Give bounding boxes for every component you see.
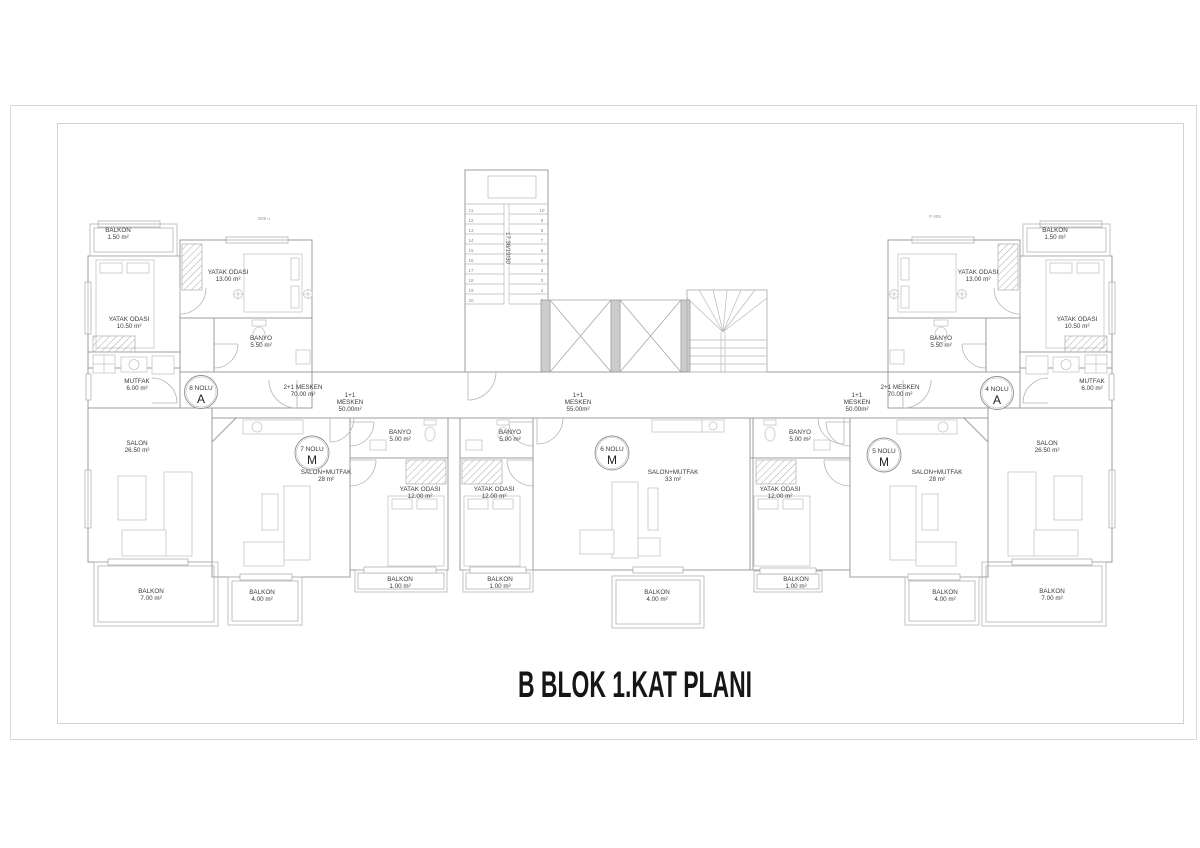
room-name: BANYO	[789, 429, 811, 436]
mesken-area: 70.00 m²	[888, 391, 913, 398]
room-name: BANYO	[250, 335, 272, 342]
stair-step-number: 9	[541, 218, 544, 223]
mesken-area: 70.00 m²	[291, 391, 316, 398]
window-dim-label: B05 u	[258, 216, 270, 221]
stair-step-number: 15	[468, 248, 474, 253]
stair-step-number: 20	[468, 298, 474, 303]
stair-step-number: 10	[539, 208, 545, 213]
room-area: 33 m²	[665, 476, 681, 483]
unit-type-letter: A	[993, 393, 1001, 407]
room-area: 1.50 m²	[1044, 234, 1065, 241]
stair-step-number: 13	[468, 228, 474, 233]
room-name: MUTFAK	[124, 378, 150, 385]
stair-step-number: 18	[468, 278, 474, 283]
room-name: MUTFAK	[1079, 378, 1105, 385]
mesken-area: 50.00m²	[338, 406, 361, 413]
room-area: 6.00 m²	[1081, 385, 1102, 392]
room-area: 4.00 m²	[934, 596, 955, 603]
stair-step-number: 19	[468, 288, 474, 293]
room-name: BALKON	[487, 576, 513, 583]
unit-type-letter: M	[879, 455, 889, 469]
unit-number: 6 NOLU	[600, 446, 624, 453]
unit-number: 7 NOLU	[300, 446, 324, 453]
mesken-type: 1+1	[573, 392, 584, 399]
room-name: SALON	[1036, 440, 1058, 447]
room-area: 5.00 m²	[789, 436, 810, 443]
stair-step-number: 6	[541, 248, 544, 253]
mesken-labels: 2+1 MESKEN 70.00 m² 1+1 MESKEN 50.00m² 1…	[283, 384, 919, 413]
unit-number: 8 NOLU	[189, 385, 213, 392]
mesken-type: 2+1 MESKEN	[283, 384, 322, 391]
mesken-type: MESKEN	[565, 399, 592, 406]
room-name: BALKON	[932, 589, 958, 596]
room-name: BANYO	[389, 429, 411, 436]
room-name: BALKON	[138, 588, 164, 595]
room-area: 5.50 m²	[250, 342, 271, 349]
room-name: BALKON	[1039, 588, 1065, 595]
room-area: 4.00 m²	[646, 596, 667, 603]
room-area: 28 m²	[929, 476, 945, 483]
room-name: BALKON	[387, 576, 413, 583]
stair-step-number: 17	[468, 268, 474, 273]
floor-plan: 11 12 13 14 15 16 17 18 19 20 10 9 8 7 6…	[0, 0, 1200, 848]
room-name: BANYO	[930, 335, 952, 342]
room-area: 13.00 m²	[966, 276, 991, 283]
room-area: 10.50 m²	[1065, 323, 1090, 330]
room-area: 1.50 m²	[107, 234, 128, 241]
room-name: BALKON	[783, 576, 809, 583]
stair-step-number: 5	[541, 258, 544, 263]
room-area: 5.00 m²	[499, 436, 520, 443]
room-name: YATAK ODASI	[474, 486, 515, 493]
room-area: 5.50 m²	[930, 342, 951, 349]
room-area: 6.00 m²	[126, 385, 147, 392]
mesken-type: MESKEN	[844, 399, 871, 406]
room-name: YATAK ODASI	[958, 269, 999, 276]
room-name: SALON+MUTFAK	[648, 469, 699, 476]
staircase: 11 12 13 14 15 16 17 18 19 20 10 9 8 7 6…	[465, 170, 548, 372]
room-name: YATAK ODASI	[400, 486, 441, 493]
stair-step-number: 4	[541, 268, 544, 273]
building-walls	[88, 240, 1112, 577]
unit-type-letter: M	[607, 453, 617, 467]
stair-step-number: 8	[541, 228, 544, 233]
room-area: 7.00 m²	[140, 595, 161, 602]
room-name: BANYO	[499, 429, 521, 436]
stair-step-number: 16	[468, 258, 474, 263]
mesken-area: 55.00m²	[566, 406, 589, 413]
room-area: 12.00 m²	[408, 493, 433, 500]
stair-step-number: 14	[468, 238, 474, 243]
room-area: 28 m²	[318, 476, 334, 483]
stair-step-number: 12	[468, 218, 474, 223]
stair-step-number: 7	[541, 238, 544, 243]
room-area: 10.50 m²	[117, 323, 142, 330]
unit-number: 4 NOLU	[985, 386, 1009, 393]
stair-step-number: 2	[541, 288, 544, 293]
room-name: YATAK ODASI	[760, 486, 801, 493]
room-name: BALKON	[249, 589, 275, 596]
mesken-area: 50.00m²	[845, 406, 868, 413]
room-name: SALON+MUTFAK	[912, 469, 963, 476]
room-name: YATAK ODASI	[109, 316, 150, 323]
room-area: 7.00 m²	[1041, 595, 1062, 602]
mesken-type: 1+1	[345, 392, 356, 399]
room-area: 26.50 m²	[125, 447, 150, 454]
room-area: 5.00 m²	[389, 436, 410, 443]
stair-dimension-label: 17.36/19/30	[504, 232, 510, 264]
elevator-shafts	[541, 300, 690, 372]
room-area: 1.00 m²	[785, 583, 806, 590]
unit-type-letter: M	[307, 453, 317, 467]
room-area: 4.00 m²	[251, 596, 272, 603]
unit-type-letter: A	[197, 392, 205, 406]
room-name: BALKON	[1042, 227, 1068, 234]
room-name: YATAK ODASI	[1057, 316, 1098, 323]
room-area: 12.00 m²	[768, 493, 793, 500]
winder-stair	[687, 290, 767, 372]
room-area: 1.00 m²	[389, 583, 410, 590]
room-area: 26.50 m²	[1035, 447, 1060, 454]
room-area: 13.00 m²	[216, 276, 241, 283]
drawing-sheet: 11 12 13 14 15 16 17 18 19 20 10 9 8 7 6…	[0, 0, 1200, 848]
room-name: YATAK ODASI	[208, 269, 249, 276]
plan-title: B BLOK 1.KAT PLANI	[449, 664, 821, 706]
stair-step-number: 3	[541, 278, 544, 283]
window-dim-labels: B05 u P 605	[258, 214, 941, 221]
room-name: BALKON	[105, 227, 131, 234]
room-name: SALON	[126, 440, 148, 447]
stair-step-number: 11	[469, 208, 474, 213]
mesken-type: 2+1 MESKEN	[880, 384, 919, 391]
room-area: 1.00 m²	[489, 583, 510, 590]
outlet-symbols	[234, 290, 967, 299]
room-name: BALKON	[644, 589, 670, 596]
room-area: 12.00 m²	[482, 493, 507, 500]
mesken-type: MESKEN	[337, 399, 364, 406]
unit-number: 5 NOLU	[872, 448, 896, 455]
mesken-type: 1+1	[852, 392, 863, 399]
window-dim-label: P 605	[929, 214, 941, 219]
furniture	[93, 244, 1107, 566]
